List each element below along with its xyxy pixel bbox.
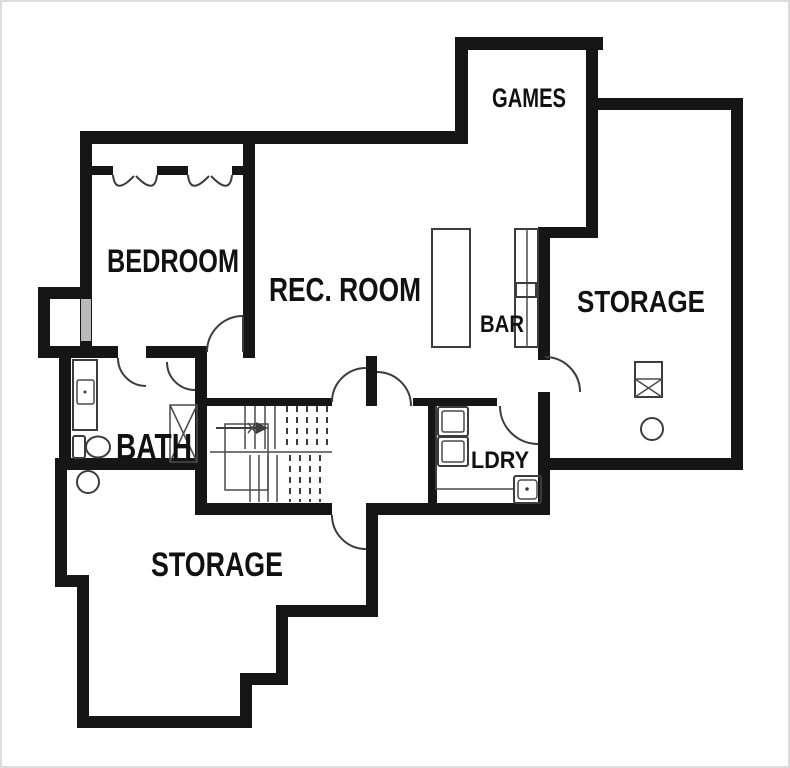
wall bbox=[455, 37, 603, 50]
wall bbox=[77, 575, 89, 728]
wall bbox=[538, 227, 550, 360]
door-arc bbox=[500, 406, 538, 444]
stair-walkline bbox=[225, 424, 268, 490]
wall bbox=[243, 138, 255, 358]
floorplan-canvas: GAMES BEDROOM REC. ROOM BAR STORAGE BATH… bbox=[0, 0, 790, 768]
walls bbox=[38, 37, 743, 728]
utility-sink-icon bbox=[514, 476, 541, 503]
wall bbox=[538, 392, 550, 515]
wall bbox=[203, 398, 332, 406]
wall bbox=[366, 356, 377, 406]
wall bbox=[77, 716, 252, 728]
mechanical bbox=[635, 362, 663, 440]
room-label-bar: BAR bbox=[480, 311, 524, 338]
wall bbox=[455, 37, 468, 144]
water-heater-icon bbox=[641, 418, 663, 440]
wall bbox=[586, 37, 598, 238]
closet-wall bbox=[157, 166, 188, 175]
wall bbox=[276, 605, 378, 617]
wall bbox=[543, 227, 598, 238]
window bbox=[81, 299, 91, 341]
closet-wall bbox=[88, 166, 113, 175]
wall bbox=[55, 458, 67, 587]
stair-treads-dashed bbox=[287, 406, 327, 502]
floor-drain-icon bbox=[77, 471, 99, 493]
furnace-icon bbox=[635, 362, 662, 397]
wall bbox=[38, 287, 92, 299]
kitchen-island bbox=[432, 229, 470, 347]
door-arc bbox=[332, 368, 366, 402]
wall bbox=[586, 98, 743, 110]
room-label-bath: BATH bbox=[116, 426, 192, 467]
room-label-storage-lower: STORAGE bbox=[151, 546, 283, 584]
sink-drain bbox=[84, 391, 87, 394]
stair-treads-solid bbox=[245, 406, 277, 502]
wall bbox=[59, 346, 71, 470]
door-arc bbox=[377, 372, 411, 406]
wall bbox=[731, 98, 743, 470]
door-arc bbox=[545, 357, 580, 392]
wall bbox=[80, 131, 468, 144]
room-label-bedroom: BEDROOM bbox=[107, 243, 239, 279]
door-arc bbox=[332, 515, 366, 549]
bar-sink-icon bbox=[516, 283, 536, 297]
wall bbox=[195, 503, 332, 515]
wall bbox=[366, 503, 550, 515]
room-label-storage-right: STORAGE bbox=[577, 284, 705, 319]
wall bbox=[366, 503, 378, 617]
wall bbox=[543, 458, 743, 470]
bifold-closet-doors-icon bbox=[113, 175, 232, 186]
door-swings bbox=[113, 175, 580, 549]
stairs-icon bbox=[210, 406, 332, 502]
door-arc bbox=[207, 316, 243, 352]
basement-floorplan: GAMES BEDROOM REC. ROOM BAR STORAGE BATH… bbox=[0, 0, 790, 768]
room-label-games: GAMES bbox=[492, 83, 566, 113]
dryer-icon bbox=[438, 437, 468, 466]
room-label-laundry: LDRY bbox=[471, 447, 529, 474]
toilet-icon bbox=[73, 436, 110, 458]
washer-icon bbox=[438, 407, 468, 436]
door-arc bbox=[118, 358, 146, 386]
room-label-rec-room: REC. ROOM bbox=[269, 271, 421, 308]
wall bbox=[413, 398, 497, 406]
door-arc bbox=[167, 362, 195, 390]
closet-wall bbox=[232, 166, 243, 175]
